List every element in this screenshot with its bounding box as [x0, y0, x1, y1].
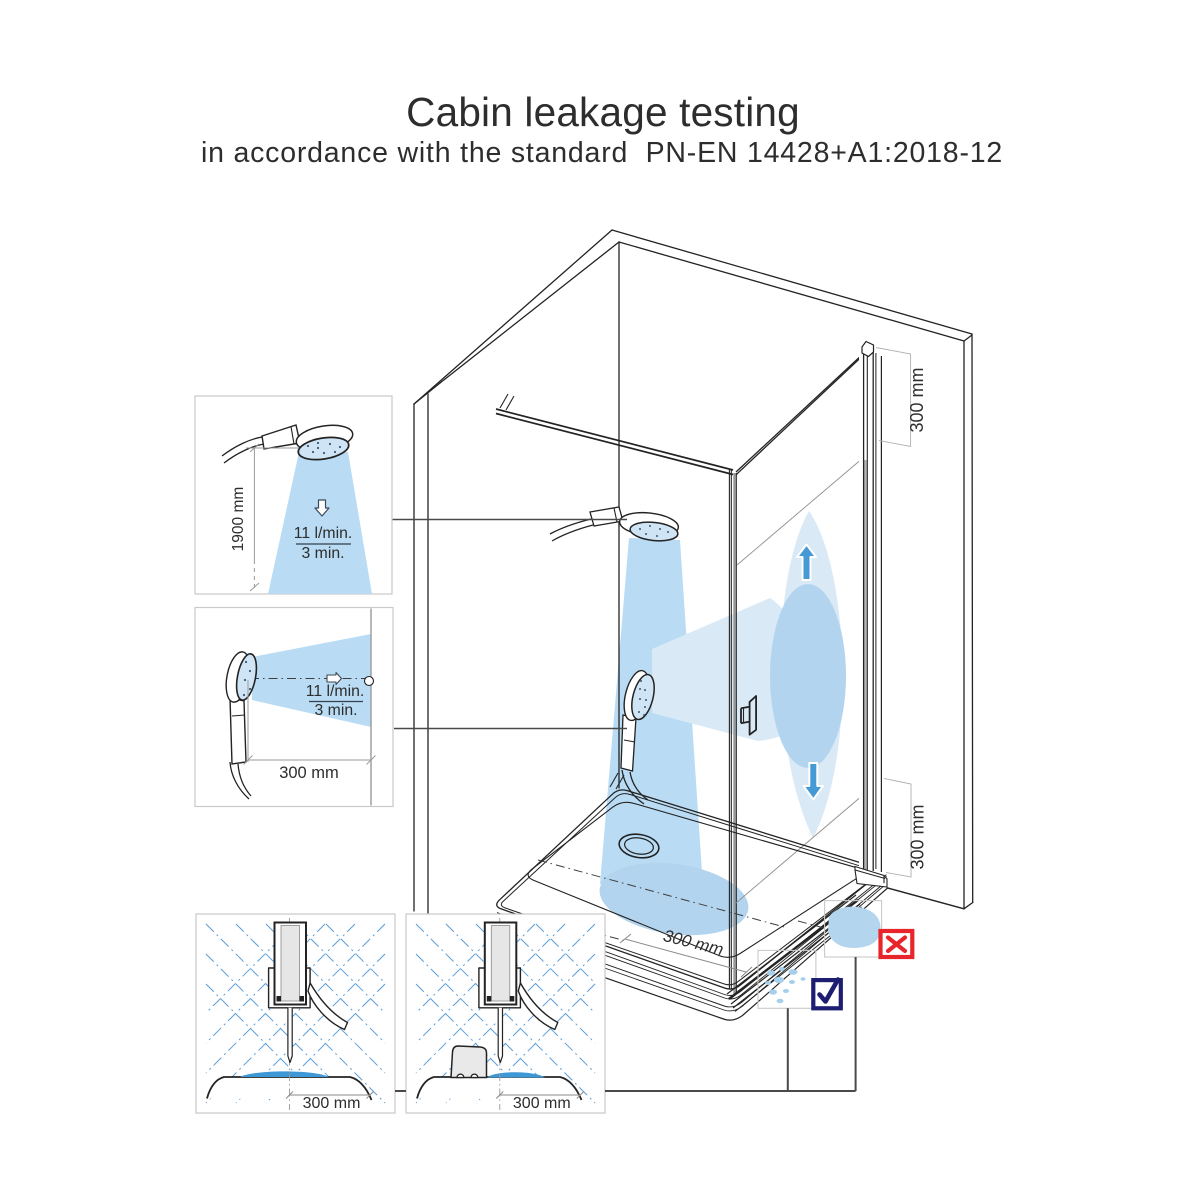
svg-text:300 mm: 300 mm [279, 764, 339, 782]
svg-text:300 mm: 300 mm [303, 1095, 361, 1112]
svg-text:in accordance with the standar: in accordance with the standard PN-EN 14… [201, 137, 1003, 169]
svg-text:Cabin leakage testing: Cabin leakage testing [406, 89, 800, 135]
svg-text:3 min.: 3 min. [314, 702, 357, 719]
svg-text:300 mm: 300 mm [513, 1095, 571, 1112]
svg-text:11 l/min.: 11 l/min. [306, 683, 365, 700]
svg-text:300 mm: 300 mm [907, 367, 927, 432]
svg-text:11 l/min.: 11 l/min. [294, 525, 353, 542]
svg-text:300 mm: 300 mm [908, 804, 928, 869]
svg-text:3 min.: 3 min. [301, 545, 344, 562]
svg-text:1900 mm: 1900 mm [230, 487, 247, 552]
